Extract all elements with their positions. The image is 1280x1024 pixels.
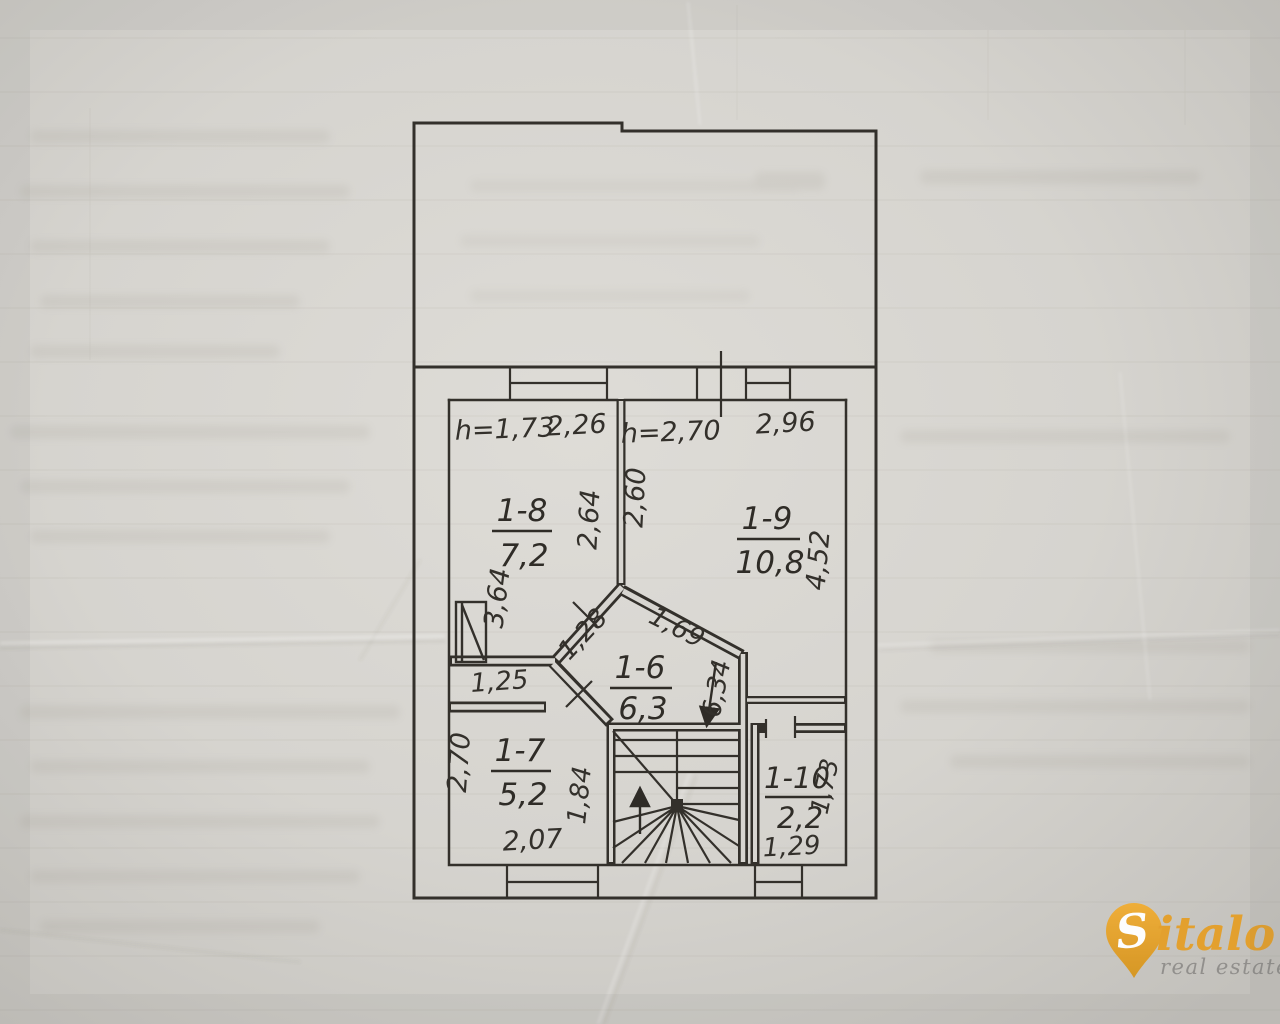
room-area-18: 7,2 xyxy=(499,538,548,574)
dim-room110-bottom: 1,29 xyxy=(762,831,821,864)
stair-newel xyxy=(671,799,683,811)
ceiling-height-room19: h=2,70 xyxy=(620,415,721,449)
dim-room19-width: 2,96 xyxy=(755,406,817,440)
dim-room17-right: 1,84 xyxy=(562,765,598,826)
brand-initial: S xyxy=(1113,902,1152,959)
room-area-17: 5,2 xyxy=(498,777,547,813)
floor-plan-canvas: h=1,73 2,26 1-8 7,2 2,64 3,64 h=2,70 2,9… xyxy=(0,0,1280,1024)
dim-room18-width: 2,26 xyxy=(546,408,608,442)
room-id-18: 1-8 xyxy=(497,493,548,529)
room-id-19: 1-9 xyxy=(742,501,793,537)
ceiling-height-room18: h=1,73 xyxy=(454,412,555,446)
dim-corridor: 1,25 xyxy=(470,665,530,699)
room-area-16: 6,3 xyxy=(618,691,667,727)
dim-room18-right: 2,64 xyxy=(572,489,606,551)
room-id-16: 1-6 xyxy=(615,650,666,686)
dim-room17-bottom: 2,07 xyxy=(502,823,564,857)
room-id-17: 1-7 xyxy=(495,733,546,769)
dim-room19-right: 4,52 xyxy=(800,529,836,592)
dim-room19-left: 2,60 xyxy=(618,467,652,529)
room-area-19: 10,8 xyxy=(735,545,804,581)
photographed-floor-plan: h=1,73 2,26 1-8 7,2 2,64 3,64 h=2,70 2,9… xyxy=(0,0,1280,1024)
dim-room17-left: 2,70 xyxy=(442,731,477,793)
